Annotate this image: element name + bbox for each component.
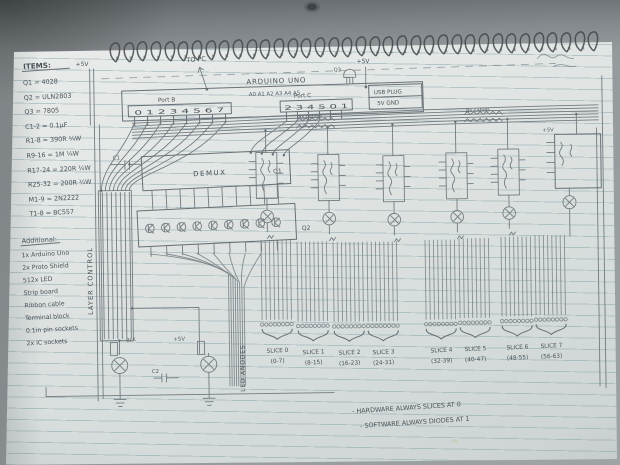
cable-label-1: 8x cables <box>298 113 322 120</box>
slice-0-name: SLICE 0 <box>266 348 288 355</box>
slice-7-name: SLICE 7 <box>540 343 562 350</box>
note-line-1: - HARDWARE ALWAYS SLICES AT 0 <box>352 400 461 415</box>
additional-list: Additional: 1x Arduino Uno 2x Proto Shie… <box>19 234 78 347</box>
usb-plug-label: USB PLUG <box>374 89 402 96</box>
slice-5-name: SLICE 5 <box>464 346 486 353</box>
transistor-array <box>137 203 297 257</box>
plus5v-top-label: +5V <box>356 58 370 65</box>
layer-ladder <box>98 189 199 354</box>
additional-line-6: 0.1in pin sockets <box>26 325 79 335</box>
slice-labels: SLICE 0 (0-7) SLICE 1 (8-15) SLICE 2 (16… <box>266 343 563 368</box>
arduino-title: ARDUINO UNO <box>246 76 306 86</box>
slice-4-range: (32-39) <box>431 358 453 365</box>
additional-line-5: Terminal block <box>24 313 70 323</box>
port-b-pins: 0 1 2 3 4 5 6 7 <box>134 107 225 117</box>
q2-label: Q2 <box>302 225 311 232</box>
led-anodes-caption: LED ANODES <box>239 345 247 392</box>
demux-label: DEMUX <box>193 169 227 179</box>
slice-2-name: SLICE 2 <box>338 350 360 357</box>
notes: - HARDWARE ALWAYS SLICES AT 0 - SOFTWARE… <box>352 400 470 431</box>
plus5v-left-label: +5V <box>75 61 89 68</box>
items-line-4: R1-8 = 390R ¼W <box>26 134 82 145</box>
latch-columns <box>249 149 526 244</box>
cable-label-2: 8x cables <box>466 107 490 114</box>
items-line-8: M1-9 = 2N2222 <box>29 193 80 203</box>
slice-6-range: (48-55) <box>507 355 529 362</box>
slice-7-range: (56-63) <box>541 353 563 360</box>
additional-line-7: 2x IC sockets <box>26 338 67 347</box>
additional-line-1: 2x Proto Shield <box>22 262 69 272</box>
pencil-schematic: ARDUINO UNO A0 A1 A2 A3 A4 A5 Port B 0 1… <box>17 49 607 435</box>
slice-3-name: SLICE 3 <box>372 349 394 356</box>
slice-1-range: (8-15) <box>305 360 323 367</box>
slice-4-name: SLICE 4 <box>430 347 452 354</box>
slice-2-range: (16-23) <box>339 360 361 367</box>
blk-wire-label: BLK <box>126 337 137 344</box>
demux-ic: DEMUX Q1 <box>141 150 291 210</box>
additional-line-3: Strip board <box>23 288 58 297</box>
plus5v-right-label: +5V <box>542 127 554 133</box>
slice-bundles <box>259 235 567 329</box>
items-line-5: R9-16 = 1M ¼W <box>26 149 79 160</box>
spiral-binding <box>110 32 597 62</box>
desk-smudge <box>304 2 458 444</box>
usb-5v-gnd-label: 5V GND <box>377 100 399 107</box>
additional-line-2: 512x LED <box>23 276 53 285</box>
items-line-7: R25-32 = 200R ¼W <box>28 178 93 189</box>
additional-title: Additional: <box>21 235 57 245</box>
c1-label: C1 <box>113 156 120 162</box>
notebook-photo: ARDUINO UNO A0 A1 A2 A3 A4 A5 Port B 0 1… <box>0 0 620 465</box>
layer-control-caption: LAYER CONTROL <box>86 247 95 315</box>
c2-label: C2 <box>152 369 159 375</box>
slice-5-range: (40-47) <box>465 357 487 364</box>
right-driver-ic <box>547 134 602 237</box>
slice-1-name: SLICE 1 <box>302 349 324 356</box>
slice-0-range: (0-7) <box>271 358 285 365</box>
schematic-overlay: ARDUINO UNO A0 A1 A2 A3 A4 A5 Port B 0 1… <box>0 0 620 465</box>
port-c-label: Port C <box>294 93 312 100</box>
additional-line-4: Ribbon cable <box>24 300 65 309</box>
arduino-analog-pins: A0 A1 A2 A3 A4 A5 <box>249 91 300 99</box>
items-list: ITEMS: Q1 = 4028 Q2 = ULN2803 Q3 = 7805 … <box>21 59 94 218</box>
items-line-3: C1-2 = 0.1µF <box>25 121 68 131</box>
slice-3-range: (24-31) <box>373 360 395 367</box>
items-line-6: R17-24 = 220R ¼W <box>27 164 92 175</box>
slice-6-name: SLICE 6 <box>506 344 528 351</box>
port-b-label: Port B <box>158 97 176 104</box>
items-line-9: T1-8 = BC557 <box>28 208 74 218</box>
items-line-1: Q2 = ULN2803 <box>24 92 72 102</box>
items-line-2: Q3 = 7805 <box>24 106 59 116</box>
to-pc-arrow <box>198 67 207 89</box>
q3-label: Q3 <box>334 67 341 73</box>
plus5v-left-wire <box>90 69 91 125</box>
note-line-2: - SOFTWARE ALWAYS DIODES AT 1 <box>360 415 470 430</box>
to-pc-label: TO PC <box>185 55 206 65</box>
additional-line-0: 1x Arduino Uno <box>21 250 69 260</box>
power-section <box>110 341 217 406</box>
plus5v-bottom-label: +5V <box>173 337 185 343</box>
items-line-0: Q1 = 4028 <box>23 77 58 87</box>
signature-scribble <box>537 54 575 67</box>
